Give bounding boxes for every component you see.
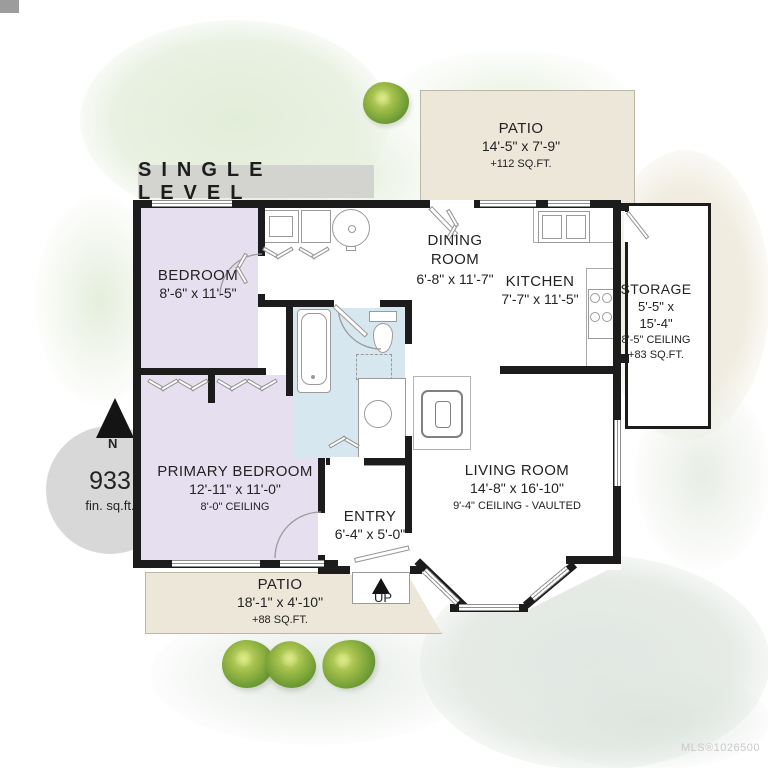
- total-area-unit: fin. sq.ft.: [85, 498, 134, 513]
- compass-label: N: [108, 436, 117, 451]
- corner-square: [0, 0, 19, 13]
- bathroom-wall-left: [286, 300, 293, 396]
- closet-divider: [208, 375, 215, 403]
- stairs-up-label: UP: [368, 590, 398, 605]
- stove-burner: [602, 312, 612, 322]
- plan-title: SINGLE LEVEL: [138, 159, 374, 205]
- laundry-appliance-inner: [269, 216, 293, 237]
- washer-base: [346, 246, 356, 251]
- room-dimensions: 14'-5" x 7'-9": [438, 138, 604, 156]
- window: [172, 560, 260, 567]
- room-area-note: +88 SQ.FT.: [190, 613, 370, 627]
- room-name: LIVING ROOM: [428, 461, 606, 480]
- room-area-note: +112 SQ.FT.: [438, 157, 604, 171]
- plan-title-banner: SINGLE LEVEL: [138, 165, 374, 198]
- laundry-appliance: [301, 210, 331, 243]
- window: [614, 420, 621, 486]
- total-area-value: 933: [89, 467, 131, 496]
- room-dimensions: 5'-5" x 15'-4": [618, 299, 694, 332]
- bedroom-primary-divider: [141, 368, 266, 375]
- exterior-wall-right: [613, 200, 621, 560]
- bathroom-lower-door-gap: [330, 457, 364, 466]
- kitchen-living-divider: [500, 366, 621, 374]
- kitchen-sink-basin: [542, 215, 562, 239]
- vanity-sink-icon: [364, 400, 392, 428]
- laundry-door-chevron: [300, 246, 328, 259]
- room-name: PRIMARY BEDROOM: [143, 462, 327, 481]
- room-dimensions: 14'-8" x 16'-10": [428, 480, 606, 498]
- room-ceiling-note: 8'-0" CEILING: [143, 500, 327, 514]
- room-label-patio-top: PATIO 14'-5" x 7'-9" +112 SQ.FT.: [438, 119, 604, 171]
- bay-wall-jog: [566, 556, 621, 564]
- room-dimensions: 8'-6" x 11'-5": [135, 285, 261, 303]
- room-label-entry: ENTRY 6'-4" x 5'-0": [318, 507, 422, 544]
- bay-window: [459, 604, 519, 611]
- laundry-door-chevron: [264, 246, 292, 259]
- room-label-storage: STORAGE 5'-5" x 15'-4" 8'-5" CEILING +83…: [618, 281, 694, 362]
- room-dimensions: 18'-1" x 4'-10": [190, 594, 370, 612]
- floor-plan: 933 fin. sq.ft. N: [0, 0, 768, 768]
- closet-door-chevron: [218, 378, 246, 391]
- room-label-primary-bedroom: PRIMARY BEDROOM 12'-11" x 11'-0" 8'-0" C…: [143, 462, 327, 514]
- room-name: PATIO: [190, 575, 370, 594]
- room-name: STORAGE: [618, 281, 694, 299]
- room-label-patio-bottom: PATIO 18'-1" x 4'-10" +88 SQ.FT.: [190, 575, 370, 627]
- exterior-wall-left: [133, 200, 141, 568]
- closet-door-chevron: [179, 378, 207, 391]
- room-dimensions: 12'-11" x 11'-0": [143, 481, 327, 499]
- storage-door-gap: [646, 419, 672, 424]
- bathroom-wall-right: [405, 300, 412, 344]
- room-name: PATIO: [438, 119, 604, 138]
- window: [280, 560, 324, 567]
- room-name: ENTRY: [318, 507, 422, 526]
- room-name: DINING ROOM: [406, 231, 504, 269]
- counter-edge: [533, 208, 534, 242]
- room-area-note: +83 SQ.FT.: [618, 348, 694, 362]
- north-arrow-icon: [96, 398, 134, 438]
- stove-burner: [590, 312, 600, 322]
- mls-watermark: MLS®1026500: [681, 742, 760, 754]
- bathtub-inner: [301, 313, 327, 385]
- room-dimensions: 7'-7" x 11'-5": [478, 291, 602, 309]
- closet-door-chevron: [248, 378, 276, 391]
- closet-door-chevron: [149, 378, 177, 391]
- fireplace-inner: [435, 401, 451, 428]
- kitchen-sink-basin: [566, 215, 586, 239]
- room-label-bedroom: BEDROOM 8'-6" x 11'-5": [135, 266, 261, 303]
- room-name: KITCHEN: [478, 272, 602, 291]
- stove-burner: [602, 293, 612, 303]
- room-ceiling-note: 8'-5" CEILING: [618, 333, 694, 347]
- vanity-dashed-outline: [356, 354, 392, 380]
- toilet-tank: [369, 311, 397, 322]
- room-label-living-room: LIVING ROOM 14'-8" x 16'-10" 9'-4" CEILI…: [428, 461, 606, 513]
- room-dimensions: 6'-4" x 5'-0": [318, 526, 422, 544]
- room-ceiling-note: 9'-4" CEILING - VAULTED: [428, 499, 606, 513]
- bathroom-door-chevron: [330, 436, 358, 449]
- room-name: BEDROOM: [135, 266, 261, 285]
- washer-knob: [348, 225, 356, 233]
- window: [548, 200, 590, 207]
- bathtub-drain: [311, 375, 315, 379]
- patio-door-gap: [430, 200, 474, 208]
- bathroom-door-gap: [334, 299, 380, 308]
- window: [480, 200, 536, 207]
- room-label-kitchen: KITCHEN 7'-7" x 11'-5": [478, 272, 602, 309]
- counter-edge: [586, 268, 613, 269]
